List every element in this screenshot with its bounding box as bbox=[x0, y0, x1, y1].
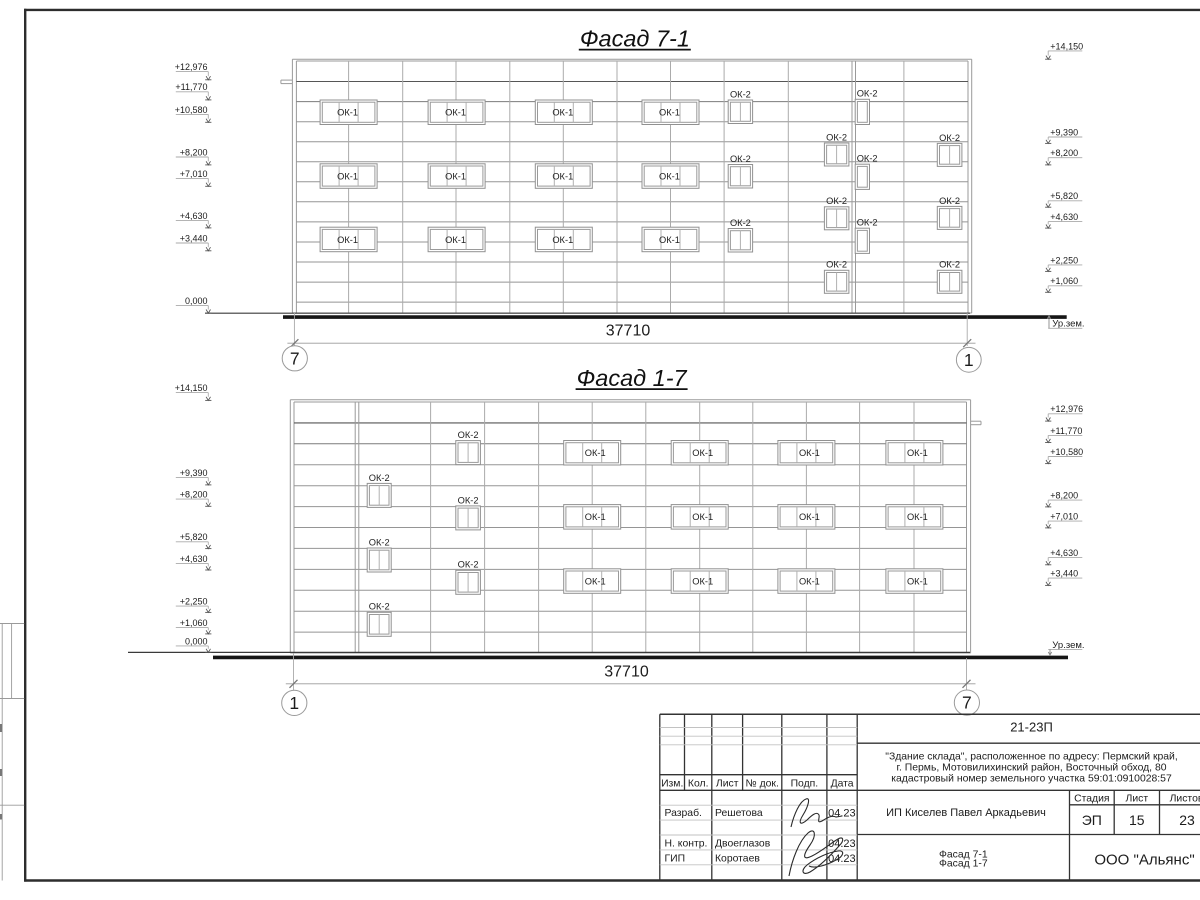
svg-text:ОК-2: ОК-2 bbox=[730, 218, 751, 228]
svg-text:+5,820: +5,820 bbox=[180, 532, 208, 542]
svg-text:37710: 37710 bbox=[604, 663, 649, 680]
svg-text:ОК-2: ОК-2 bbox=[369, 473, 390, 483]
svg-text:ОК-1: ОК-1 bbox=[659, 172, 680, 182]
svg-text:+4,630: +4,630 bbox=[1050, 212, 1078, 222]
svg-text:ОК-1: ОК-1 bbox=[907, 512, 928, 522]
svg-text:ОК-1: ОК-1 bbox=[585, 512, 606, 522]
svg-text:Кол.: Кол. bbox=[688, 778, 709, 789]
svg-text:+9,390: +9,390 bbox=[180, 468, 208, 478]
svg-text:ОК-2: ОК-2 bbox=[826, 196, 847, 206]
svg-text:ЭП: ЭП bbox=[1082, 812, 1102, 828]
svg-text:+2,250: +2,250 bbox=[180, 597, 208, 607]
svg-text:Двоеглазов: Двоеглазов bbox=[715, 839, 771, 850]
svg-text:ОК-1: ОК-1 bbox=[552, 172, 573, 182]
svg-text:ОК-2: ОК-2 bbox=[730, 154, 751, 164]
svg-text:ОК-2: ОК-2 bbox=[826, 132, 847, 142]
svg-text:0,000: 0,000 bbox=[185, 636, 208, 646]
svg-text:23: 23 bbox=[1179, 812, 1195, 828]
svg-text:+1,060: +1,060 bbox=[180, 618, 208, 628]
svg-text:Изм.: Изм. bbox=[661, 778, 683, 789]
svg-text:ОК-2: ОК-2 bbox=[939, 260, 960, 270]
svg-text:1: 1 bbox=[964, 350, 974, 370]
svg-text:+14,150: +14,150 bbox=[175, 383, 208, 393]
svg-text:+8,200: +8,200 bbox=[1050, 491, 1078, 501]
svg-text:ОК-1: ОК-1 bbox=[907, 576, 928, 586]
svg-text:1: 1 bbox=[289, 693, 299, 713]
svg-text:+10,580: +10,580 bbox=[1050, 447, 1083, 457]
svg-text:+5,820: +5,820 bbox=[1050, 191, 1078, 201]
svg-text:Подп.: Подп. bbox=[791, 778, 819, 789]
svg-text:ОК-2: ОК-2 bbox=[458, 560, 479, 570]
svg-text:+8,200: +8,200 bbox=[180, 490, 208, 500]
svg-text:ОК-1: ОК-1 bbox=[337, 108, 358, 118]
svg-text:Коротаев: Коротаев bbox=[715, 854, 760, 865]
svg-text:+3,440: +3,440 bbox=[180, 233, 208, 243]
svg-text:Лист: Лист bbox=[1126, 793, 1149, 804]
svg-text:ОК-2: ОК-2 bbox=[857, 154, 878, 164]
svg-text:ОК-2: ОК-2 bbox=[857, 89, 878, 99]
svg-text:+3,440: +3,440 bbox=[1050, 569, 1078, 579]
svg-text:+10,580: +10,580 bbox=[175, 105, 208, 115]
svg-text:15: 15 bbox=[1129, 812, 1145, 828]
svg-text:+8,200: +8,200 bbox=[1050, 148, 1078, 158]
svg-text:Фасад 1-7: Фасад 1-7 bbox=[939, 859, 988, 870]
svg-text:ОК-1: ОК-1 bbox=[659, 235, 680, 245]
svg-text:+12,976: +12,976 bbox=[175, 62, 208, 72]
svg-text:ОК-2: ОК-2 bbox=[458, 430, 479, 440]
svg-text:+1,060: +1,060 bbox=[1050, 276, 1078, 286]
svg-text:+12,976: +12,976 bbox=[1050, 404, 1083, 414]
svg-text:ОК-2: ОК-2 bbox=[369, 602, 390, 612]
svg-text:04.23: 04.23 bbox=[828, 838, 856, 850]
svg-text:ОК-2: ОК-2 bbox=[730, 89, 751, 99]
svg-text:ОК-1: ОК-1 bbox=[585, 448, 606, 458]
svg-text:ОК-1: ОК-1 bbox=[552, 108, 573, 118]
svg-text:ОК-1: ОК-1 bbox=[907, 448, 928, 458]
svg-text:ОК-1: ОК-1 bbox=[659, 108, 680, 118]
svg-text:кадастровый номер земельного у: кадастровый номер земельного участка 59:… bbox=[891, 773, 1172, 784]
svg-text:ИП Киселев Павел Аркадьевич: ИП Киселев Павел Аркадьевич bbox=[886, 807, 1046, 819]
svg-text:ОК-1: ОК-1 bbox=[337, 172, 358, 182]
svg-text:Разраб.: Разраб. bbox=[665, 807, 702, 819]
svg-text:ОК-1: ОК-1 bbox=[445, 172, 466, 182]
svg-text:ОК-1: ОК-1 bbox=[445, 235, 466, 245]
svg-text:ОК-2: ОК-2 bbox=[826, 260, 847, 270]
svg-text:+7,010: +7,010 bbox=[180, 169, 208, 179]
svg-text:+2,250: +2,250 bbox=[1050, 255, 1078, 265]
svg-text:ОК-2: ОК-2 bbox=[939, 133, 960, 143]
svg-text:04.23: 04.23 bbox=[828, 808, 856, 820]
svg-text:ОК-1: ОК-1 bbox=[337, 235, 358, 245]
svg-text:0,000: 0,000 bbox=[185, 296, 208, 306]
svg-text:ООО "Альянс": ООО "Альянс" bbox=[1094, 851, 1194, 868]
svg-text:ОК-1: ОК-1 bbox=[692, 576, 713, 586]
svg-text:г. Пермь, Мотовилихинский райо: г. Пермь, Мотовилихинский район, Восточн… bbox=[896, 761, 1166, 773]
svg-text:+11,770: +11,770 bbox=[175, 82, 207, 92]
svg-text:ОК-2: ОК-2 bbox=[939, 196, 960, 206]
svg-text:+4,630: +4,630 bbox=[180, 211, 208, 221]
svg-text:Решетова: Решетова bbox=[715, 808, 763, 819]
svg-text:Н. контр.: Н. контр. bbox=[665, 839, 708, 850]
svg-text:ОК-2: ОК-2 bbox=[369, 537, 390, 547]
svg-text:Листов: Листов bbox=[1170, 793, 1200, 804]
svg-text:Лист: Лист bbox=[716, 778, 739, 789]
svg-text:ОК-1: ОК-1 bbox=[799, 448, 820, 458]
svg-text:ОК-1: ОК-1 bbox=[692, 448, 713, 458]
svg-text:+11,770: +11,770 bbox=[1050, 426, 1082, 436]
svg-text:+14,150: +14,150 bbox=[1050, 41, 1083, 51]
svg-text:ОК-1: ОК-1 bbox=[552, 235, 573, 245]
svg-text:+8,200: +8,200 bbox=[180, 147, 208, 157]
svg-text:"Здание склада", расположенное: "Здание склада", расположенное по адресу… bbox=[885, 751, 1178, 762]
svg-text:ОК-2: ОК-2 bbox=[857, 218, 878, 228]
svg-text:Дата: Дата bbox=[831, 778, 854, 789]
svg-text:+4,630: +4,630 bbox=[180, 554, 208, 564]
svg-text:21-23П: 21-23П bbox=[1010, 720, 1053, 735]
svg-text:7: 7 bbox=[962, 693, 972, 713]
svg-text:ОК-1: ОК-1 bbox=[445, 108, 466, 118]
svg-text:ОК-1: ОК-1 bbox=[799, 576, 820, 586]
svg-text:ОК-1: ОК-1 bbox=[692, 512, 713, 522]
svg-text:Фасад 7-1: Фасад 7-1 bbox=[580, 25, 690, 51]
svg-text:+9,390: +9,390 bbox=[1050, 127, 1078, 137]
svg-text:7: 7 bbox=[290, 348, 300, 368]
svg-text:Стадия: Стадия bbox=[1074, 793, 1109, 804]
svg-text:37710: 37710 bbox=[606, 322, 651, 339]
svg-text:ГИП: ГИП bbox=[665, 854, 686, 865]
svg-text:ОК-1: ОК-1 bbox=[585, 576, 606, 586]
svg-text:+4,630: +4,630 bbox=[1050, 548, 1078, 558]
svg-text:ОК-2: ОК-2 bbox=[458, 495, 479, 505]
svg-text:№ док.: № док. bbox=[746, 778, 779, 789]
svg-text:ОК-1: ОК-1 bbox=[799, 512, 820, 522]
svg-text:+7,010: +7,010 bbox=[1050, 512, 1078, 522]
svg-text:Фасад 1-7: Фасад 1-7 bbox=[577, 365, 688, 391]
